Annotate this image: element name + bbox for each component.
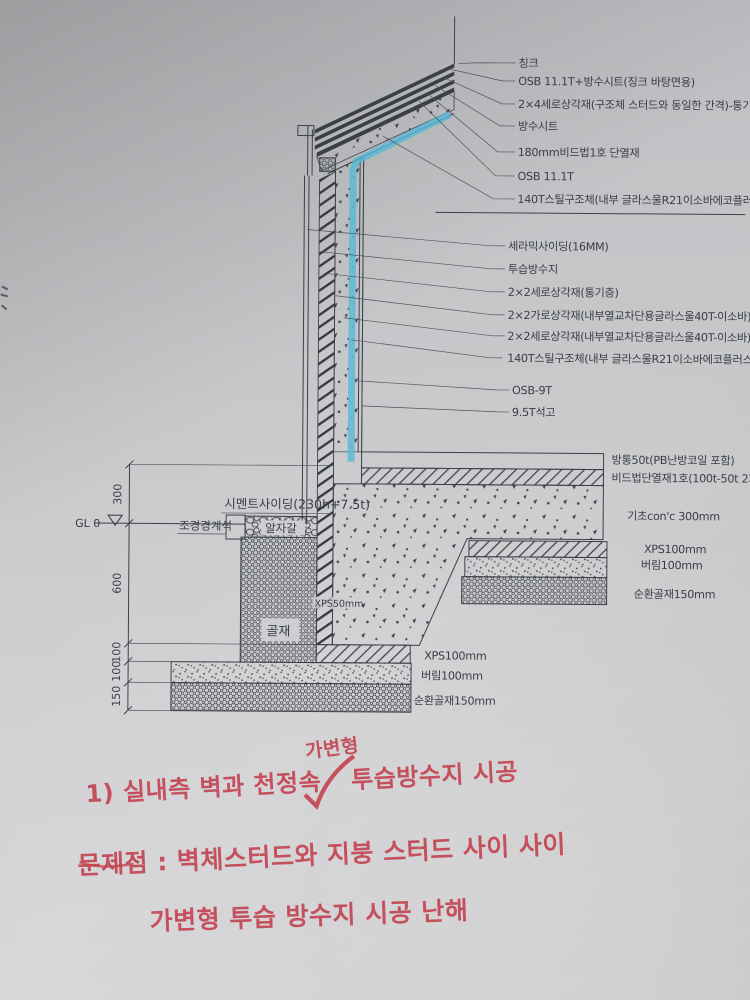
label-aggregate-right: 순환골재150mm [634,588,716,602]
label-2x2-vertical-batten2: 2×2세로상각재(내부열교차단용글라스울40T-이소바) [507,330,750,345]
label-eps-insulation: 비드법단열재1호(100t-50t 2회교차시공) [611,472,750,486]
label-screed: 방통50t(PB난방코일 포함) [612,453,735,468]
label-zinc: 칭크 [518,57,538,70]
label-2x4-batten: 2×4세로상각재(구조체 스터드와 동일한 간격)-통기층 [518,97,750,113]
note-line3: 가변형 투습 방수지 시공 난해 [149,896,469,936]
aggregate-column [240,537,317,663]
label-membrane: 방수시트 [518,120,558,133]
label-cement-siding: 시멘트사이딩(230h+7.5t) [224,496,370,512]
dim-600: 600 [111,573,124,594]
dim-150: 150 [110,686,123,707]
label-xps-left: XPS100mm [424,649,486,662]
eps-insulation-band [361,468,603,486]
label-2x2-horizontal-batten: 2×2가로상각재(내부열교차단용글라스울40T-이소바) [508,309,750,324]
label-foundation-concrete: 기초con'c 300mm [627,510,720,524]
dim-300: 300 [111,484,124,505]
dim-100a: 100 [110,642,123,663]
gl-label: GL 0 [75,517,100,530]
clipped-edge-marks [1,286,8,309]
label-ceramic-siding: 세라믹사이딩(16MM) [508,240,609,254]
note-line1-suffix: 투습방수지 시공 [350,758,518,795]
screed-band [362,452,604,470]
label-2x2-vertical-batten: 2×2세로상각재(통기층) [508,286,619,300]
label-140t-steel-wall: 140T스틸구조체(내부 글라스울R21이소바에코플러스) [507,352,750,367]
lean-concrete-band-left [171,662,411,685]
recycled-aggregate-band-left [171,683,411,713]
label-xps-right: XPS100mm [644,543,706,556]
roof-insulation-layer [317,91,455,172]
label-vapor-barrier: 투습방수지 [508,263,558,276]
eave-drip-edge [298,125,314,135]
photographed-drawing-sheet: GL 0 300 600 100 100 150 칭크 OSB 11.1T+방수… [0,0,750,1000]
handwritten-notes: 가변형 1) 실내측 벽과 천정속 투습방수지 시공 문제점 : 벽체스터드와 … [77,735,567,936]
label-aggregate: 골재 [266,624,290,639]
recycled-aggregate-band-right [462,577,607,605]
label-boundary-stone: 조경경계석 [179,519,232,533]
note-line2: 문제점 : 벽체스터드와 지붕 스터드 사이 사이 [77,830,567,880]
detail-drawing: GL 0 300 600 100 100 150 칭크 OSB 11.1T+방수… [0,0,750,1000]
xps-band-left [316,645,410,664]
siding-inner-line [307,176,309,525]
label-divider-line [435,212,745,214]
label-gypsum: 9.5T석고 [512,406,556,419]
label-lean-left: 버림100mm [421,669,483,682]
label-140t-steel-roof: 140T스틸구조체(내부 글라스울R21이소바에코플러스) [517,193,750,208]
note-line1-prefix: 1) 실내측 벽과 천정속 [85,768,322,808]
label-aggregate-left: 순환골재150mm [414,694,496,708]
siding-outer-line [302,176,304,525]
lean-concrete-band-right [465,557,607,578]
label-pebble: 알자갈 [265,521,297,535]
foundation-section [171,451,608,714]
wall-label-group: 세라믹사이딩(16MM) 투습방수지 2×2세로상각재(통기층) 2×2가로상각… [306,230,750,421]
label-osb-membrane: OSB 11.1T+방수시트(징크 바탕면용) [518,75,695,89]
label-180-eps: 180mm비드법1호 단열재 [518,146,640,160]
label-osb: OSB 11.1T [518,170,575,183]
xps-band-right [469,541,607,558]
eave-blocking [320,158,336,172]
label-xps50: XPS50mm [315,599,364,610]
label-osb-9t: OSB-9T [512,384,552,397]
label-lean-right: 버림100mm [641,559,703,572]
dim-100b: 100 [110,661,123,682]
